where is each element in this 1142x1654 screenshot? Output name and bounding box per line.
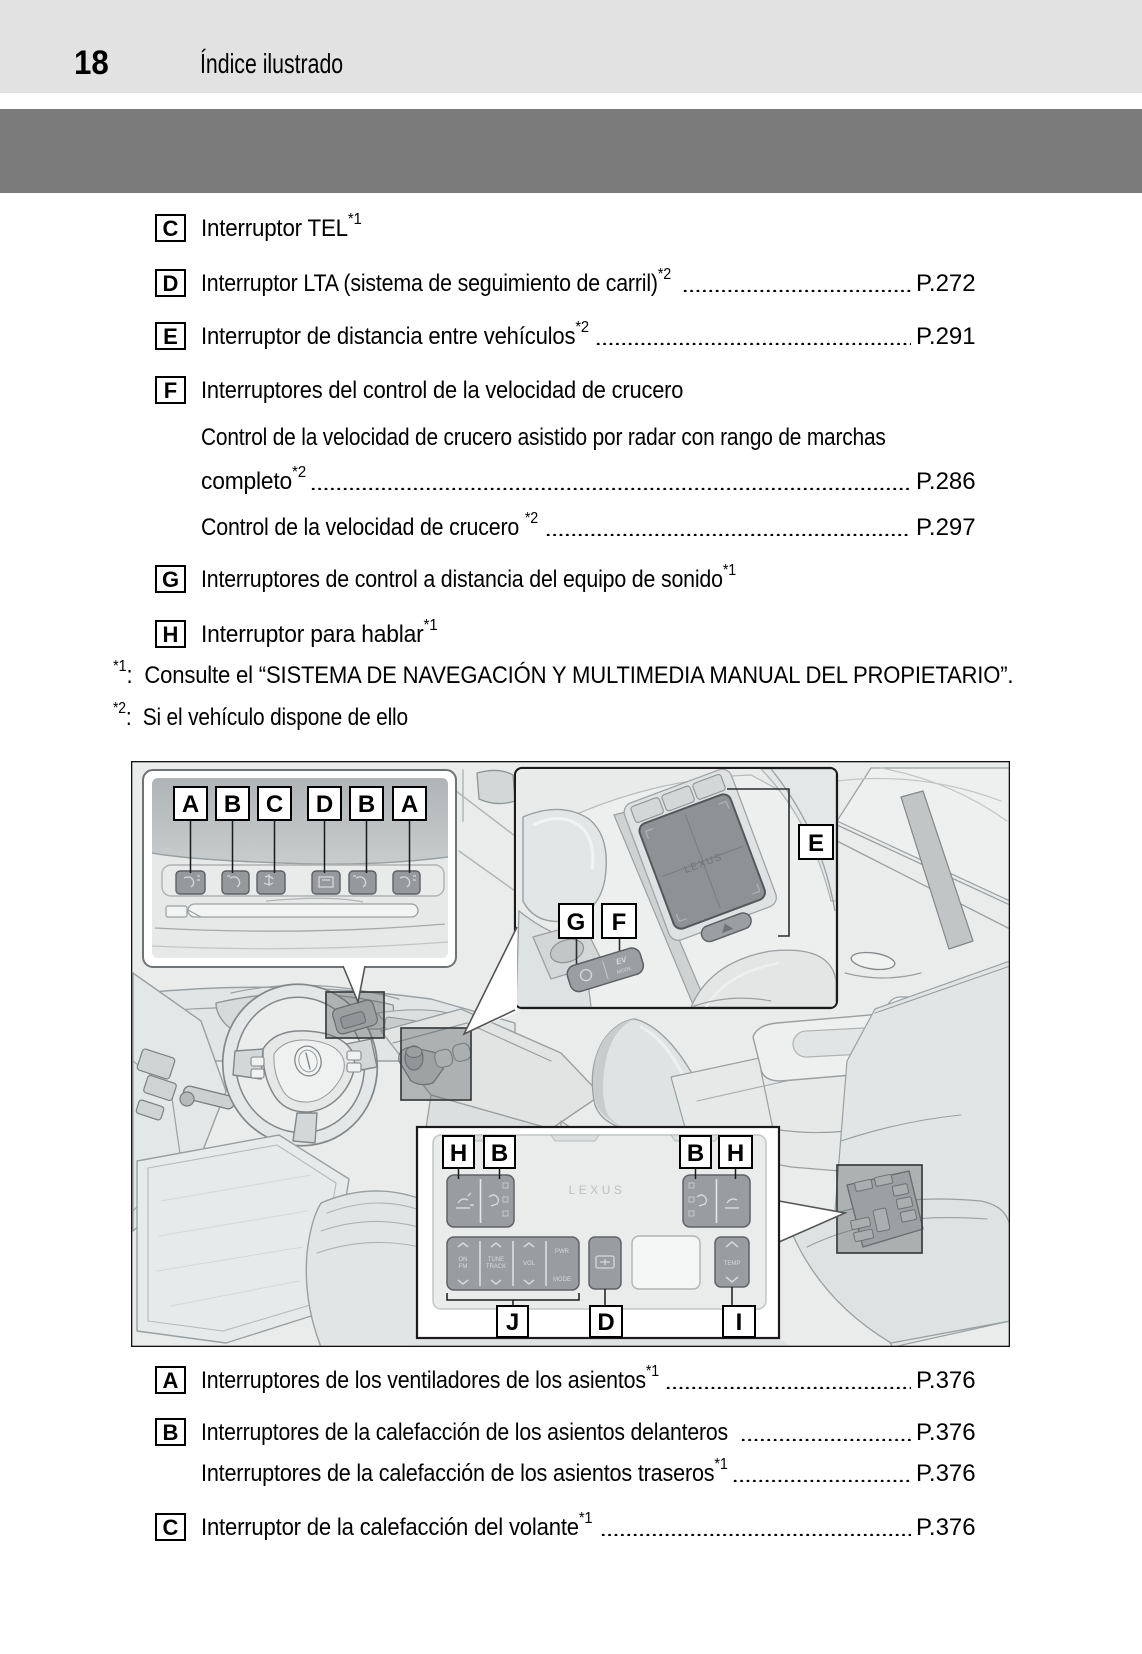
svg-text:G: G: [567, 909, 586, 936]
svg-text:B: B: [224, 791, 241, 818]
svg-text:B: B: [358, 791, 375, 818]
svg-text:ON: ON: [459, 1257, 468, 1263]
svg-text:H: H: [727, 1140, 744, 1167]
svg-text:B: B: [491, 1140, 508, 1167]
svg-text:LEXUS: LEXUS: [569, 1183, 626, 1197]
svg-text:A: A: [401, 791, 418, 818]
svg-text:A: A: [182, 791, 199, 818]
svg-text:H: H: [450, 1140, 467, 1167]
svg-text:TUNE: TUNE: [488, 1257, 504, 1263]
svg-text:FM: FM: [459, 1264, 468, 1270]
svg-text:C: C: [266, 791, 283, 818]
svg-text:D: D: [597, 1309, 614, 1336]
svg-text:I: I: [736, 1309, 743, 1336]
svg-text:E: E: [808, 830, 824, 857]
svg-text:F: F: [612, 909, 627, 936]
svg-text:J: J: [506, 1309, 519, 1336]
svg-text:PWR: PWR: [555, 1249, 570, 1255]
svg-text:B: B: [687, 1140, 704, 1167]
svg-text:MODE: MODE: [553, 1277, 571, 1283]
svg-text:TRACK: TRACK: [486, 1264, 506, 1270]
svg-text:D: D: [316, 791, 333, 818]
svg-text:TEMP: TEMP: [724, 1261, 741, 1267]
svg-text:VOL: VOL: [523, 1261, 536, 1267]
